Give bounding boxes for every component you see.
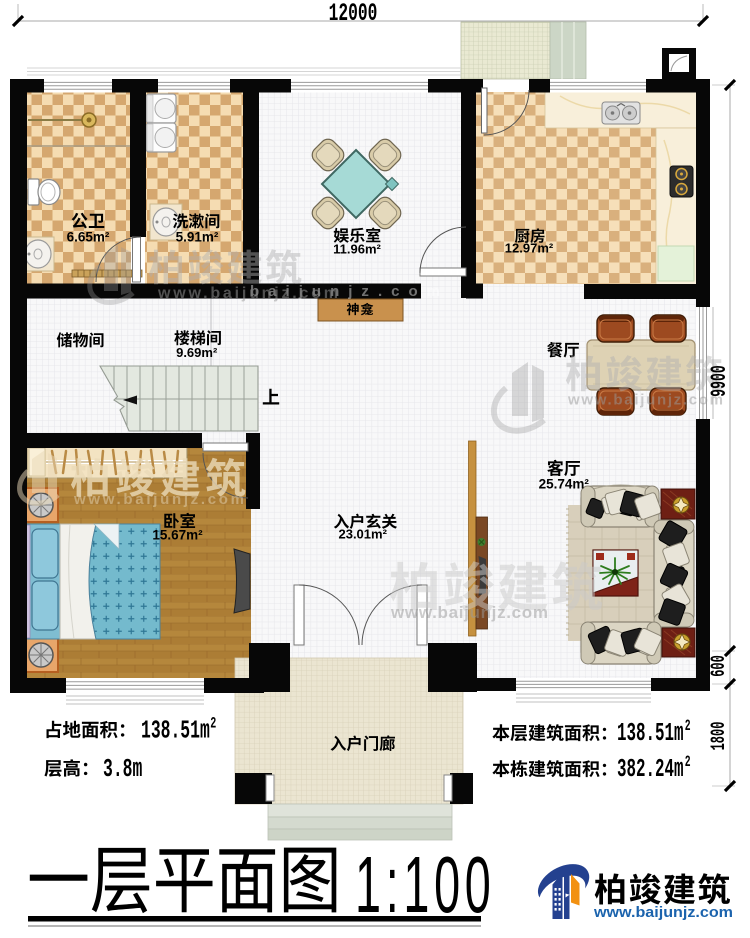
svg-text:1800: 1800 [707, 722, 730, 751]
svg-text:6.65m²: 6.65m² [67, 230, 110, 245]
svg-text:600: 600 [707, 655, 730, 677]
svg-text:1:100: 1:100 [355, 840, 495, 929]
svg-text:5.91m²: 5.91m² [176, 230, 219, 245]
svg-text:23.01m²: 23.01m² [338, 527, 387, 542]
svg-text:11.96m²: 11.96m² [333, 242, 381, 257]
svg-text:www.baijunjz.com: www.baijunjz.com [390, 603, 548, 622]
svg-text:9.69m²: 9.69m² [176, 345, 218, 360]
svg-text:382.24m: 382.24m [617, 755, 684, 784]
svg-text:12.97m²: 12.97m² [505, 241, 554, 256]
svg-text:138.51m: 138.51m [617, 719, 684, 748]
svg-text:2: 2 [210, 716, 216, 734]
svg-text:15.67m²: 15.67m² [152, 528, 203, 543]
svg-text:www.baijunjz.com: www.baijunjz.com [593, 905, 733, 921]
svg-text:12000: 12000 [329, 0, 378, 28]
svg-text:138.51m: 138.51m [141, 716, 210, 746]
svg-text:3.8m: 3.8m [103, 754, 142, 784]
svg-text:2: 2 [685, 717, 691, 735]
svg-text:25.74m²: 25.74m² [539, 477, 590, 492]
svg-text:2: 2 [685, 753, 691, 771]
